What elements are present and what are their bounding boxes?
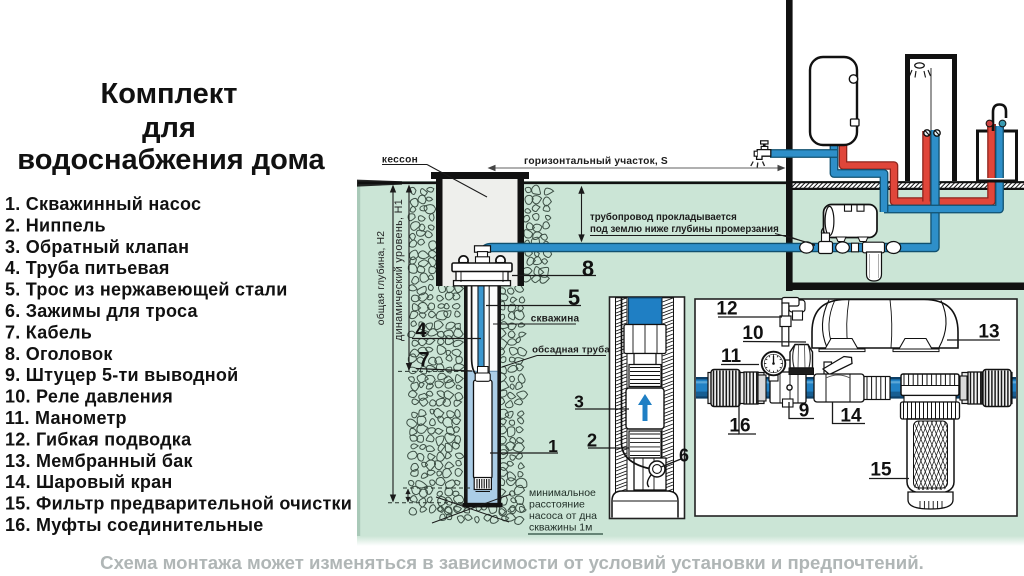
svg-text:динамический уровень, Н1: динамический уровень, Н1 <box>393 199 405 341</box>
svg-text:10: 10 <box>742 323 763 344</box>
svg-text:9. Штуцер 5-ти выводной: 9. Штуцер 5-ти выводной <box>5 365 238 385</box>
svg-text:16. Муфты соединительные: 16. Муфты соединительные <box>5 515 264 535</box>
svg-text:11: 11 <box>721 346 742 367</box>
svg-text:12: 12 <box>716 299 737 320</box>
svg-text:расстояние: расстояние <box>529 499 585 511</box>
svg-text:водоснабжения дома: водоснабжения дома <box>17 144 325 176</box>
svg-text:6. Зажимы для троса: 6. Зажимы для троса <box>5 301 198 321</box>
svg-text:5. Трос из нержавеющей стали: 5. Трос из нержавеющей стали <box>5 280 288 300</box>
svg-text:трубопровод прокладывается: трубопровод прокладывается <box>590 212 737 223</box>
svg-text:10. Реле давления: 10. Реле давления <box>5 387 173 407</box>
svg-text:7: 7 <box>418 349 429 371</box>
svg-text:5: 5 <box>568 285 580 310</box>
svg-text:13. Мембранный бак: 13. Мембранный бак <box>5 451 194 471</box>
svg-text:8. Оголовок: 8. Оголовок <box>5 344 113 364</box>
svg-text:2: 2 <box>587 430 597 451</box>
svg-text:для: для <box>142 112 196 144</box>
svg-text:4: 4 <box>415 320 427 342</box>
svg-text:Комплект: Комплект <box>101 78 238 110</box>
svg-text:общая глубина, Н2: общая глубина, Н2 <box>375 231 387 325</box>
svg-text:6: 6 <box>679 446 689 466</box>
svg-text:11. Манометр: 11. Манометр <box>5 408 127 428</box>
svg-text:минимальное: минимальное <box>529 487 596 499</box>
svg-text:скважина: скважина <box>531 314 580 325</box>
svg-text:7. Кабель: 7. Кабель <box>5 322 92 342</box>
svg-text:15. Фильтр предварительной очи: 15. Фильтр предварительной очистки <box>5 494 352 514</box>
svg-text:Схема монтажа может изменяться: Схема монтажа может изменяться в зависим… <box>100 552 924 573</box>
svg-text:под землю ниже глубины промерз: под землю ниже глубины промерзания <box>590 224 779 235</box>
svg-text:14. Шаровый кран: 14. Шаровый кран <box>5 472 173 492</box>
svg-text:3. Обратный клапан: 3. Обратный клапан <box>5 237 189 257</box>
svg-text:16: 16 <box>729 416 750 437</box>
svg-text:8: 8 <box>582 256 594 281</box>
svg-text:насоса от дна: насоса от дна <box>529 510 597 522</box>
svg-text:1: 1 <box>548 436 558 456</box>
svg-text:15: 15 <box>870 460 892 481</box>
svg-text:скважины 1м: скважины 1м <box>529 522 592 534</box>
svg-text:9: 9 <box>799 401 810 422</box>
svg-text:2. Ниппель: 2. Ниппель <box>5 215 106 235</box>
svg-text:горизонтальный участок, S: горизонтальный участок, S <box>524 156 668 167</box>
svg-text:12. Гибкая подводка: 12. Гибкая подводка <box>5 429 192 449</box>
svg-text:1. Скважинный насос: 1. Скважинный насос <box>5 194 201 214</box>
svg-text:кессон: кессон <box>382 155 418 166</box>
svg-text:3: 3 <box>574 392 584 412</box>
svg-text:обсадная труба: обсадная труба <box>532 345 610 356</box>
svg-text:13: 13 <box>978 322 999 343</box>
svg-text:14: 14 <box>840 406 862 427</box>
svg-text:4. Труба питьевая: 4. Труба питьевая <box>5 258 170 278</box>
